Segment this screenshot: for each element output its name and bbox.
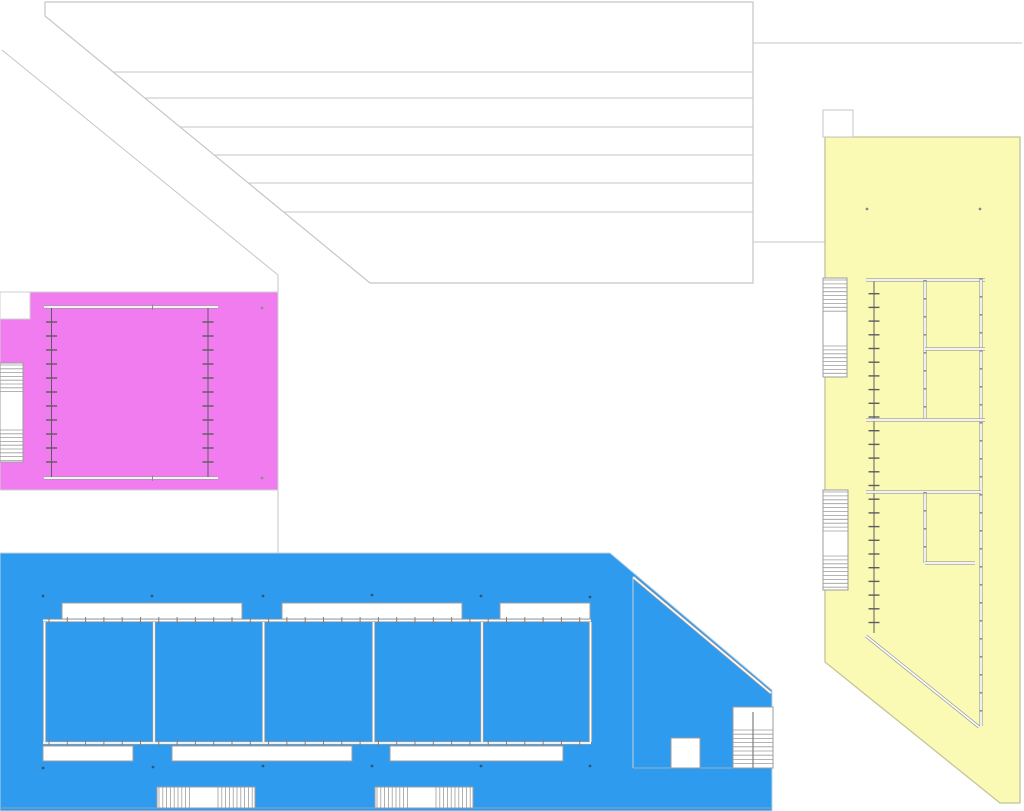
- blue-court-square: [671, 738, 700, 768]
- blue-skylight-north-1: [62, 603, 242, 619]
- pink-column-dots-dot: [261, 477, 264, 480]
- blue-wing-footprint: [0, 553, 772, 811]
- yellow-stair-lower-body: [823, 490, 848, 590]
- hall-roof-outline: [45, 2, 753, 283]
- blue-column-dots-north-dot: [151, 595, 154, 598]
- blue-skylight-south-1: [43, 746, 133, 761]
- blue-stair-south-1-body: [157, 787, 255, 808]
- blue-skylight-north-2: [282, 603, 462, 619]
- yellow-column-dots-dot: [866, 208, 869, 211]
- pink-corner-notch: [0, 292, 30, 319]
- pink-wing-footprint: [0, 292, 278, 490]
- architectural-site-plan: [0, 0, 1024, 811]
- blue-column-dots-south-dot: [589, 765, 592, 768]
- blue-column-dots-north-dot: [371, 594, 374, 597]
- blue-skylight-south-3: [390, 746, 563, 761]
- plan-viewport: [0, 0, 1024, 811]
- pink-stair-body: [0, 363, 23, 462]
- blue-skylight-south-2: [172, 746, 352, 761]
- blue-column-dots-south-dot: [262, 765, 265, 768]
- blue-column-dots-north-dot: [589, 596, 592, 599]
- blue-column-dots-north-dot: [42, 595, 45, 598]
- blue-column-dots-north-dot: [480, 595, 483, 598]
- yellow-column-dots-dot: [979, 208, 982, 211]
- blue-column-dots-south-dot: [42, 767, 45, 770]
- blue-column-dots-south-dot: [480, 765, 483, 768]
- yellow-roof-notch: [823, 110, 853, 137]
- blue-column-dots-south-dot: [371, 765, 374, 768]
- yellow-wing-footprint: [825, 137, 1020, 803]
- blue-column-dots-south-dot: [152, 766, 155, 769]
- blue-stair-south-2-body: [375, 787, 473, 808]
- yellow-stair-upper-body: [823, 278, 847, 377]
- pink-column-dots-dot: [261, 307, 264, 310]
- blue-skylight-north-3: [500, 603, 590, 619]
- blue-column-dots-north-dot: [262, 595, 265, 598]
